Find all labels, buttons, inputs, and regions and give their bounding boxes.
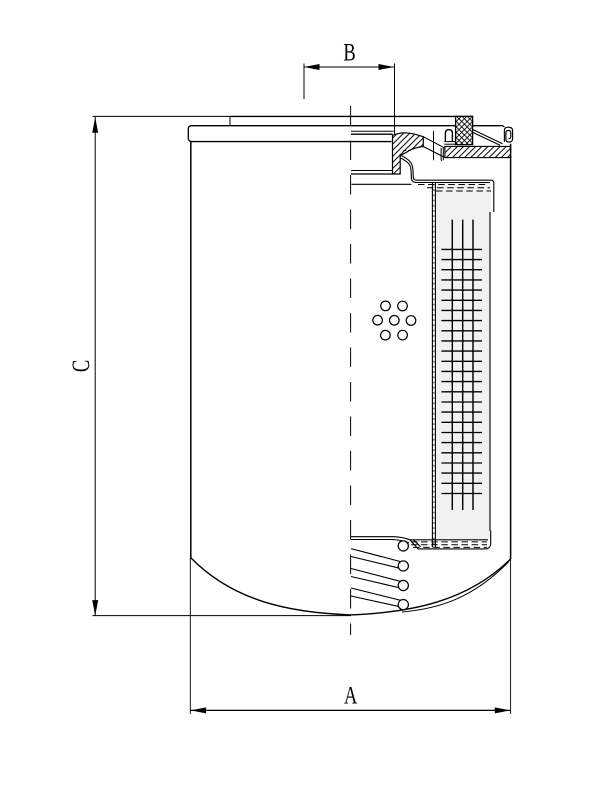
svg-text:A: A [344, 681, 357, 709]
svg-text:B: B [343, 38, 355, 66]
svg-text:C: C [66, 360, 94, 372]
